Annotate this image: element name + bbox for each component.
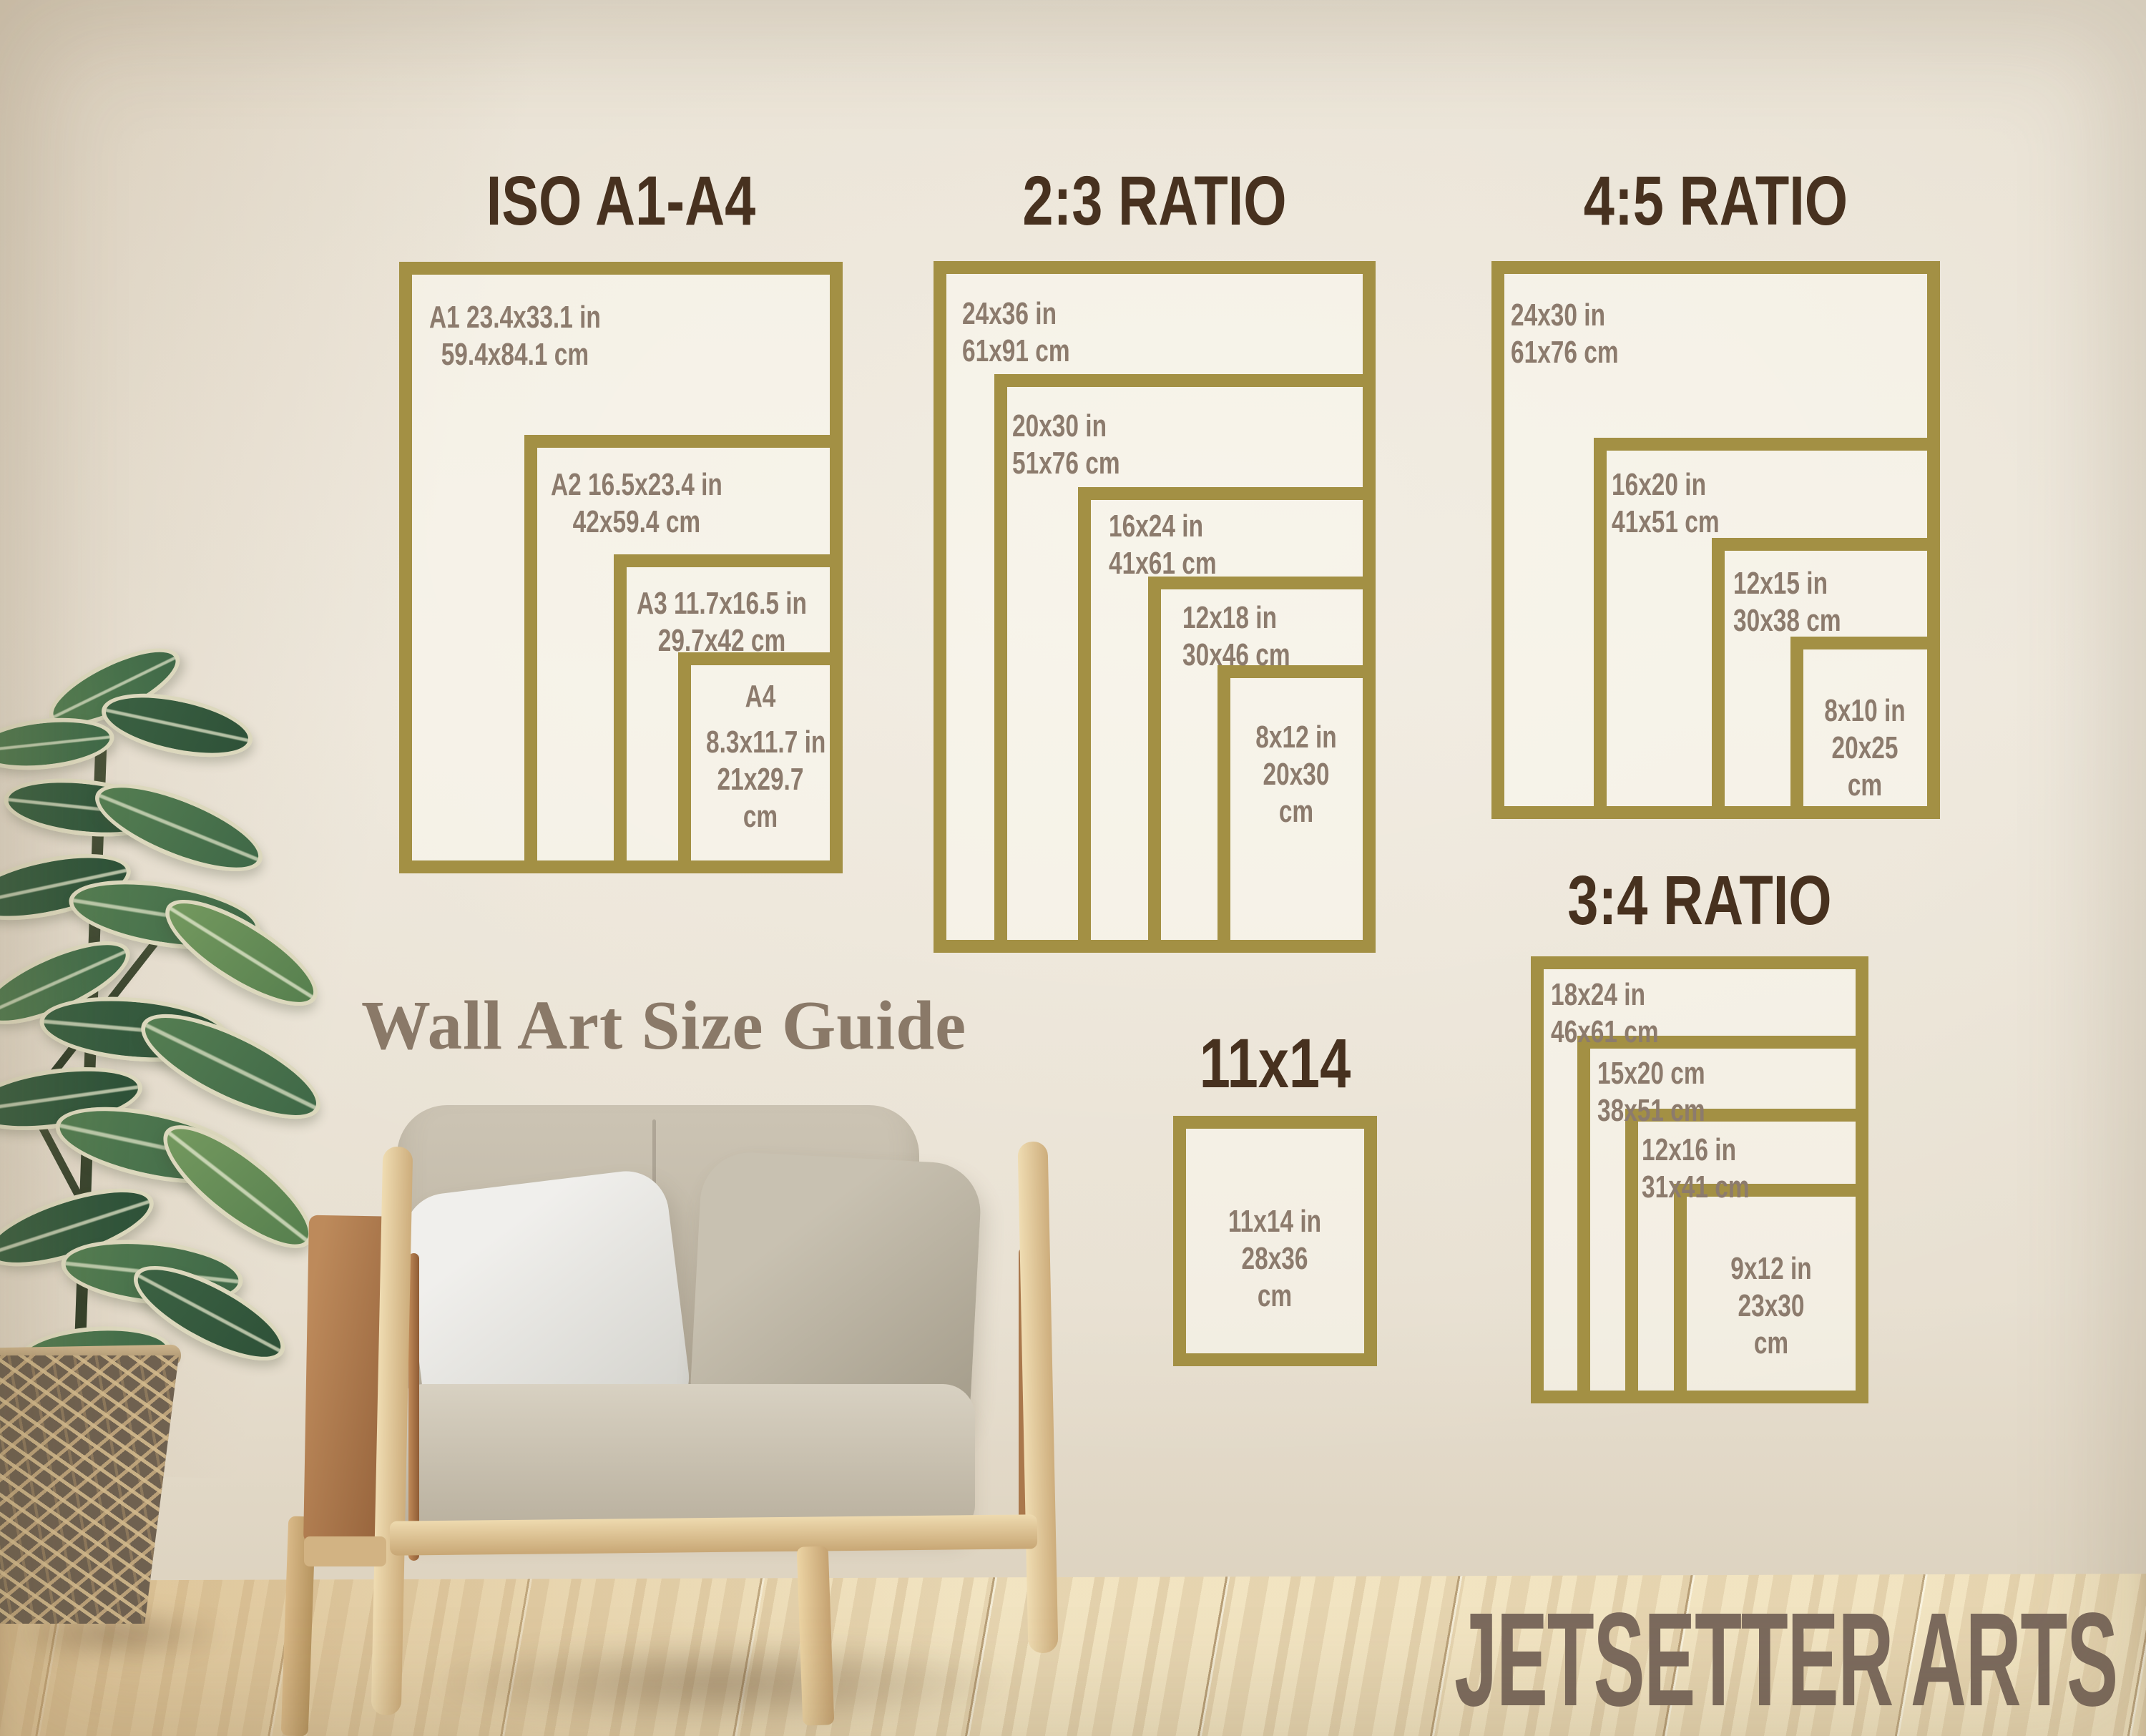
wall-art-size-guide-poster: ISO A1-A4 A1 23.4x33.1 in59.4x84.1 cm A2… [0,0,2146,1736]
chair-shadow [300,1620,1145,1736]
leather-strap-left [408,1253,419,1561]
chair-leg-front [797,1546,835,1725]
chair-wood-rail-left [304,1536,386,1566]
armchair [0,0,2146,1736]
chair-wood-post-right [1018,1142,1059,1654]
chair-seat-cushion [392,1384,975,1531]
chair-wood-rail-front [390,1514,1037,1555]
